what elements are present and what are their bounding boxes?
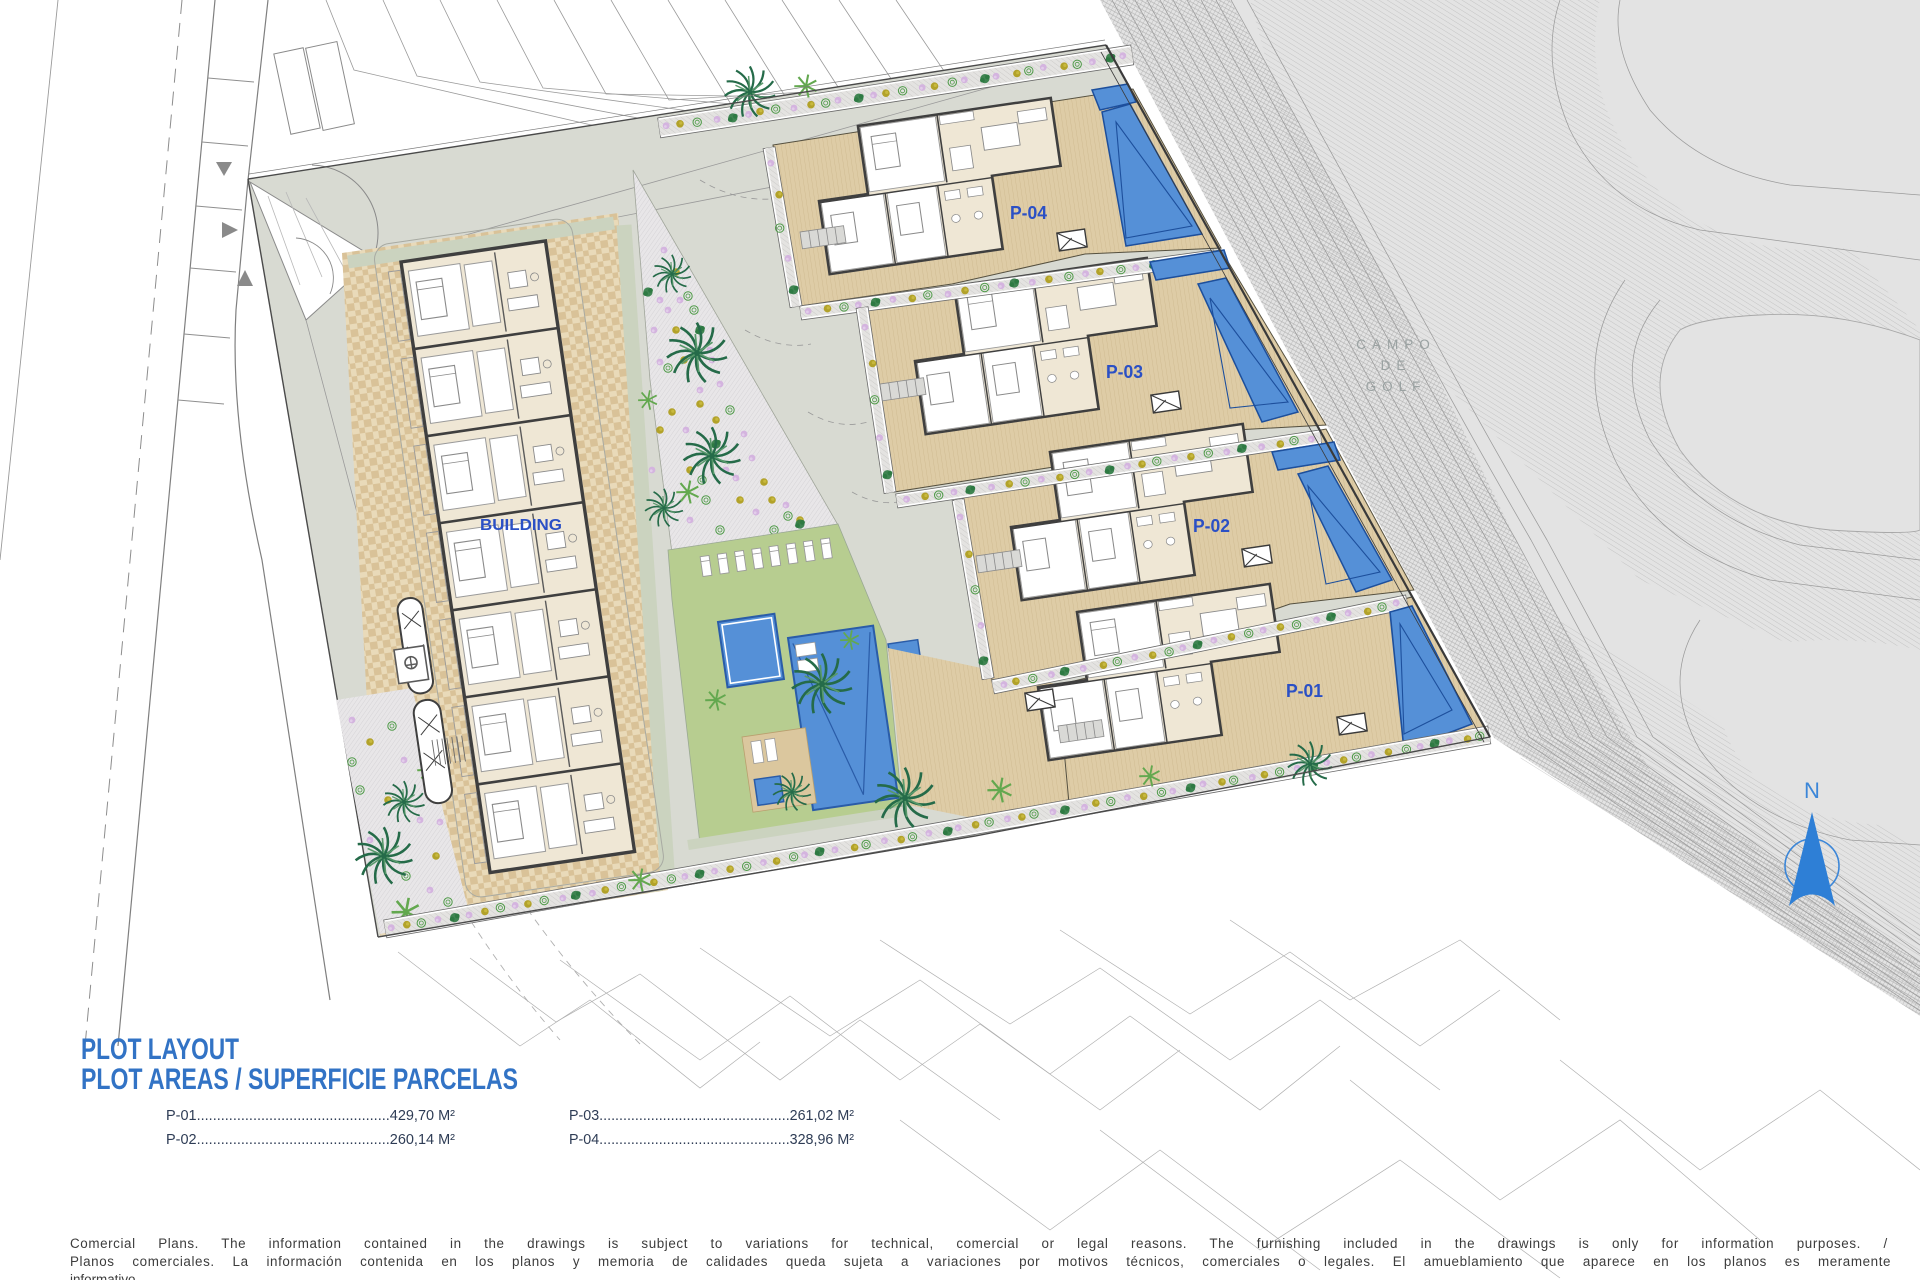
svg-text:P-03: P-03	[1106, 361, 1143, 382]
svg-text:P-03..........................: P-03....................................…	[569, 1108, 854, 1124]
svg-text:P-04: P-04	[1010, 202, 1048, 223]
svg-text:informativo.: informativo.	[70, 1272, 139, 1280]
svg-text:PLOT LAYOUT: PLOT LAYOUT	[81, 1033, 239, 1066]
svg-text:DE: DE	[1381, 358, 1412, 373]
svg-text:P-01..........................: P-01....................................…	[166, 1108, 455, 1124]
svg-text:N: N	[1804, 778, 1820, 803]
svg-text:BUILDING: BUILDING	[480, 517, 562, 534]
svg-text:Comercial Plans. The informati: Comercial Plans. The information contain…	[70, 1236, 1888, 1251]
svg-text:Planos comerciales. La informa: Planos comerciales. La información conte…	[70, 1254, 1891, 1269]
svg-text:P-04..........................: P-04....................................…	[569, 1132, 854, 1148]
svg-text:P-01: P-01	[1286, 680, 1323, 701]
svg-text:P-02..........................: P-02....................................…	[166, 1132, 455, 1148]
svg-text:PLOT AREAS / SUPERFICIE PARCEL: PLOT AREAS / SUPERFICIE PARCELAS	[81, 1063, 518, 1096]
svg-text:GOLF: GOLF	[1366, 379, 1427, 394]
svg-text:P-02: P-02	[1193, 515, 1230, 536]
svg-text:CAMPO: CAMPO	[1356, 337, 1436, 352]
